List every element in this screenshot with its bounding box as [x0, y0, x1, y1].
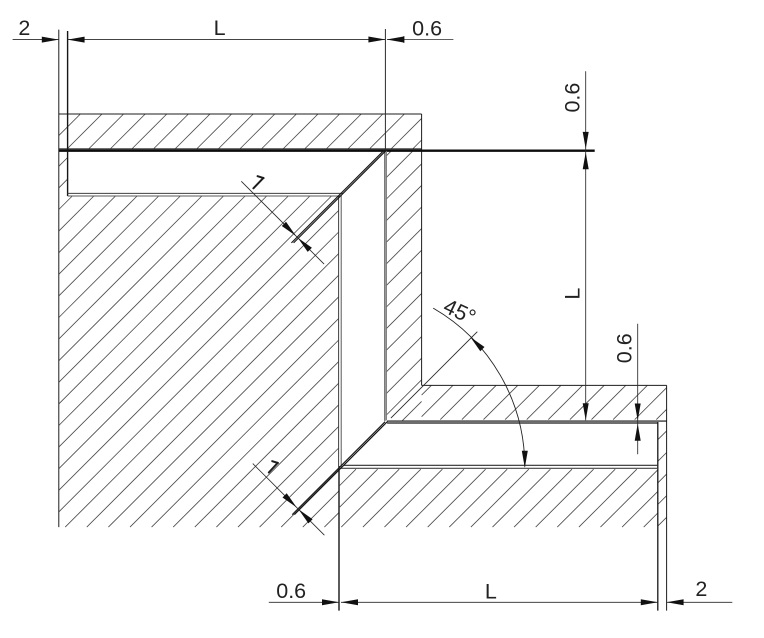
svg-text:2: 2 [695, 577, 707, 601]
svg-text:L: L [561, 288, 585, 300]
svg-text:2: 2 [18, 16, 30, 40]
svg-text:L: L [485, 580, 497, 604]
svg-text:0.6: 0.6 [276, 579, 306, 603]
svg-text:0.6: 0.6 [412, 16, 442, 40]
svg-text:0.6: 0.6 [612, 333, 636, 363]
svg-text:L: L [214, 16, 226, 40]
svg-text:0.6: 0.6 [561, 83, 585, 113]
